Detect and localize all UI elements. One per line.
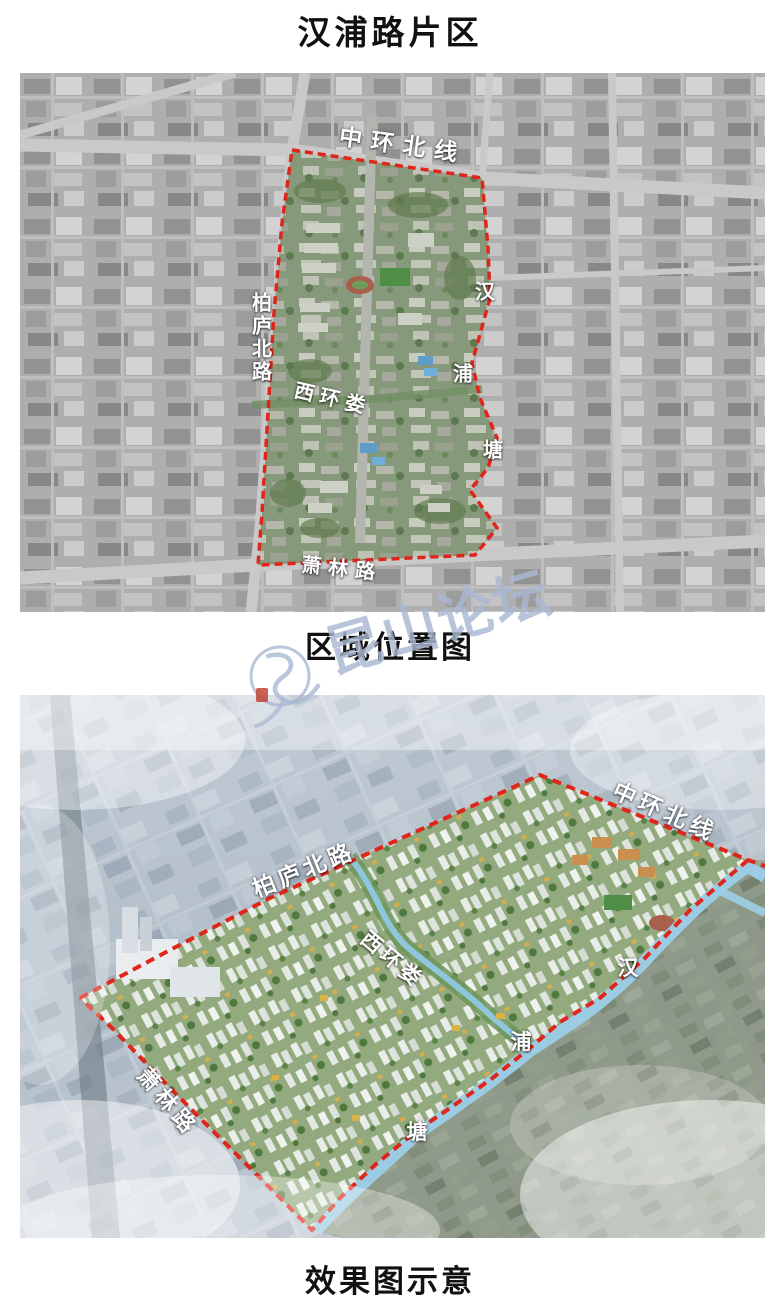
road-label-bailu-north: 柏庐北路 <box>246 292 275 384</box>
waterway-label-tang: 塘 <box>407 1116 428 1146</box>
waterway-label-tang: 塘 <box>483 434 503 463</box>
waterway-label-han: 汉 <box>618 952 639 982</box>
location-map-caption: 区域位置图 <box>0 622 780 667</box>
waterway-label-pu: 浦 <box>453 358 473 387</box>
location-map-image: 中环北线 柏庐北路 西环娄 汉 浦 塘 萧林路 <box>20 73 765 612</box>
forum-post-page: 汉浦路片区 <box>0 0 780 1313</box>
waterway-label-pu: 浦 <box>511 1026 532 1056</box>
waterway-label-han: 汉 <box>475 276 495 305</box>
page-title: 汉浦路片区 <box>0 6 780 54</box>
render-map-image: 中环北线 柏庐北路 西环娄 汉 浦 塘 萧林路 <box>20 695 765 1238</box>
render-map-caption: 效果图示意 <box>0 1256 780 1301</box>
